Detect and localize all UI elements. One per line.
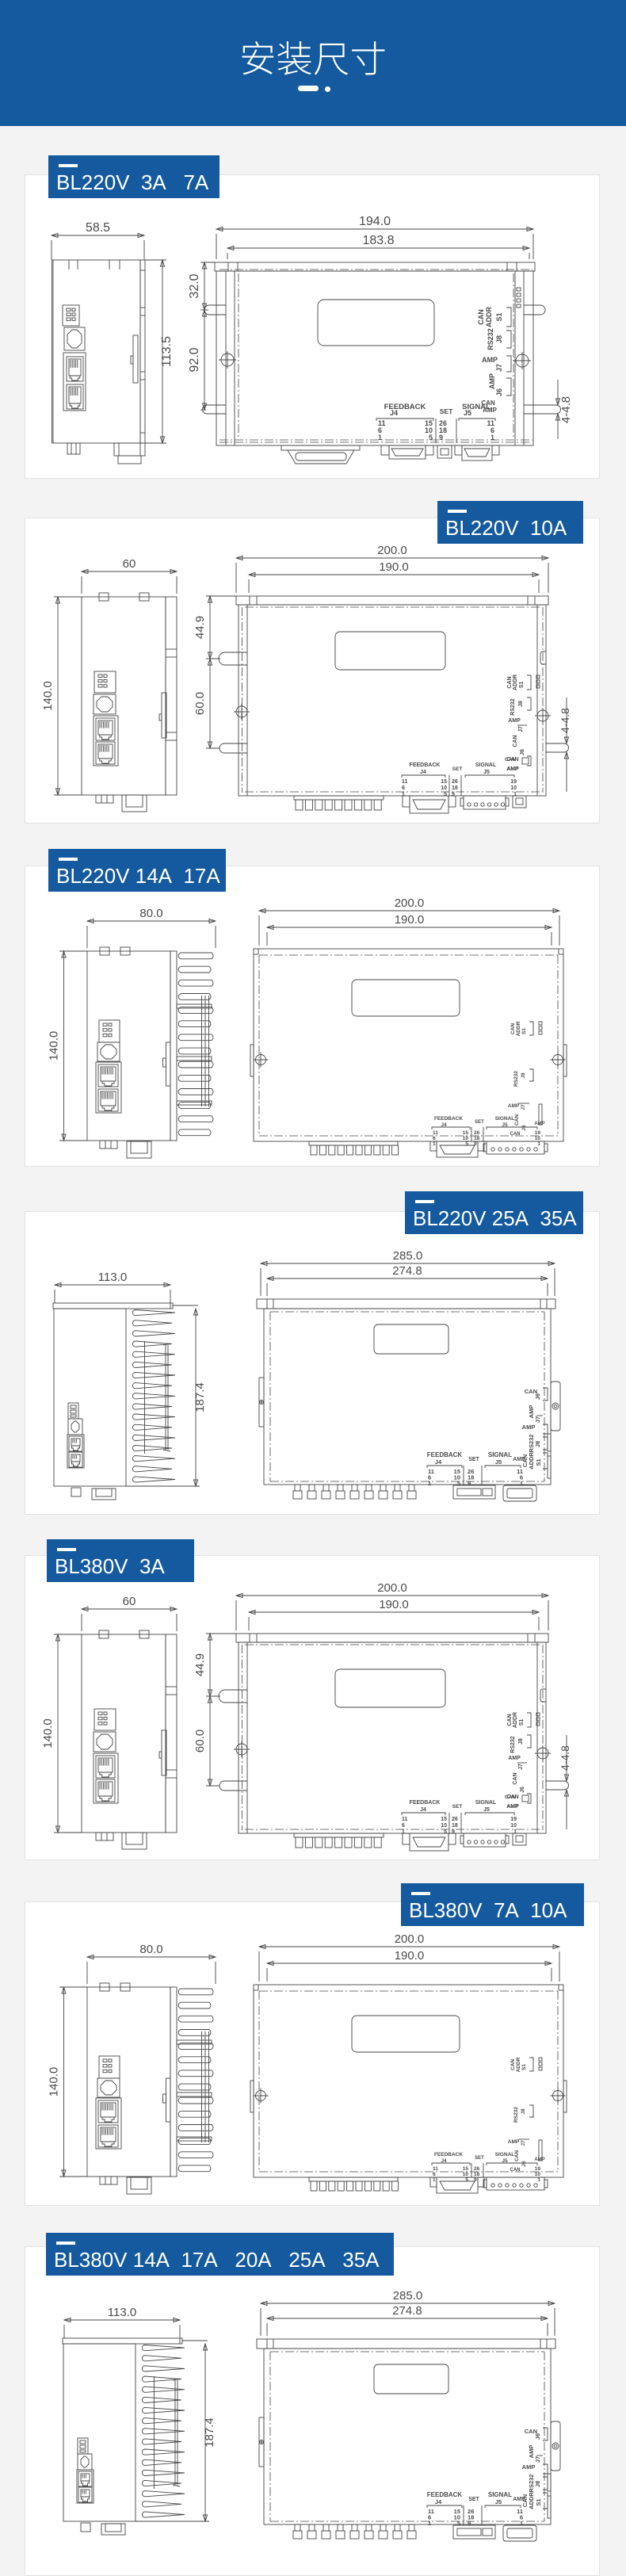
svg-text:AMP: AMP (508, 718, 521, 724)
svg-text:J6: J6 (495, 388, 503, 396)
svg-text:10: 10 (510, 785, 517, 791)
svg-text:AMP: AMP (513, 1457, 525, 1462)
svg-text:J6: J6 (520, 749, 525, 755)
svg-text:SIGNAL: SIGNAL (475, 762, 497, 768)
svg-text:18: 18 (452, 1823, 458, 1829)
svg-text:274.8: 274.8 (392, 1264, 422, 1278)
svg-text:200.0: 200.0 (395, 1932, 425, 1946)
svg-text:SET: SET (475, 2156, 484, 2161)
svg-text:32.0: 32.0 (188, 273, 201, 298)
svg-text:J7: J7 (495, 364, 503, 372)
svg-text:SET: SET (468, 2497, 479, 2502)
svg-text:J4: J4 (390, 409, 398, 417)
svg-text:SET: SET (475, 1120, 484, 1125)
svg-text:S1: S1 (535, 2498, 542, 2505)
svg-text:18: 18 (474, 2172, 480, 2177)
svg-text:113.0: 113.0 (108, 2306, 136, 2319)
svg-text:ADDR: ADDR (485, 307, 493, 327)
svg-text:10: 10 (535, 1136, 541, 1141)
svg-text:15: 15 (441, 1817, 447, 1822)
svg-text:15: 15 (441, 779, 447, 785)
svg-text:SIGNAL: SIGNAL (488, 2491, 512, 2498)
svg-text:190.0: 190.0 (379, 560, 409, 574)
svg-text:19: 19 (535, 1130, 541, 1136)
svg-text:RS232: RS232 (510, 1736, 516, 1753)
svg-text:4-4.8: 4-4.8 (559, 708, 571, 733)
svg-text:J8: J8 (534, 1441, 541, 1447)
svg-text:9: 9 (452, 1829, 455, 1835)
svg-text:4-4.8: 4-4.8 (559, 1745, 571, 1771)
svg-text:15: 15 (463, 2166, 469, 2172)
svg-text:60: 60 (123, 557, 136, 571)
svg-text:J4: J4 (435, 1458, 442, 1466)
svg-text:140.0: 140.0 (41, 1718, 55, 1749)
svg-text:10: 10 (535, 2172, 541, 2177)
svg-text:CAN: CAN (505, 757, 516, 762)
svg-text:S1: S1 (521, 2064, 527, 2070)
svg-text:183.8: 183.8 (362, 234, 394, 247)
svg-text:S1: S1 (519, 1719, 525, 1726)
svg-text:J6: J6 (534, 1393, 541, 1400)
svg-text:5: 5 (457, 1480, 460, 1487)
svg-text:ADDR: ADDR (528, 1452, 535, 1470)
svg-text:ADDR: ADDR (513, 1712, 518, 1728)
svg-text:18: 18 (474, 1136, 480, 1141)
svg-text:AMP: AMP (513, 2497, 525, 2502)
svg-text:RS232: RS232 (513, 2107, 519, 2123)
svg-text:J6: J6 (521, 2161, 527, 2167)
svg-text:FEEDBACK: FEEDBACK (427, 2491, 463, 2498)
svg-text:10: 10 (510, 1823, 517, 1829)
svg-text:1: 1 (513, 792, 517, 797)
svg-text:J7: J7 (521, 2140, 526, 2146)
svg-text:CAN: CAN (514, 2150, 520, 2161)
svg-text:CAN: CAN (513, 735, 518, 747)
svg-text:6: 6 (402, 785, 405, 791)
svg-text:113.5: 113.5 (160, 336, 174, 367)
svg-text:RS232: RS232 (487, 328, 494, 350)
svg-text:26: 26 (474, 1130, 480, 1136)
svg-text:5: 5 (444, 1829, 447, 1835)
svg-text:ADDR: ADDR (516, 2057, 521, 2072)
svg-text:11: 11 (433, 1130, 438, 1136)
svg-text:274.8: 274.8 (392, 2304, 422, 2318)
svg-text:CAN: CAN (510, 2059, 516, 2070)
svg-text:80.0: 80.0 (139, 907, 162, 920)
svg-text:RS232: RS232 (510, 698, 516, 716)
svg-text:5: 5 (444, 792, 447, 797)
svg-text:S1: S1 (519, 682, 525, 689)
svg-text:S1: S1 (535, 1458, 542, 1466)
svg-text:9: 9 (468, 2520, 471, 2527)
svg-text:1: 1 (433, 2177, 436, 2183)
svg-text:J7: J7 (534, 2456, 541, 2463)
svg-text:SET: SET (452, 1804, 463, 1810)
svg-text:1: 1 (433, 1141, 436, 1147)
svg-text:26: 26 (452, 1817, 458, 1822)
svg-text:J6: J6 (520, 1787, 525, 1793)
svg-text:J8: J8 (518, 701, 524, 707)
svg-text:1: 1 (537, 1141, 540, 1147)
svg-text:AMP: AMP (534, 1122, 544, 1126)
svg-text:10: 10 (441, 1823, 447, 1829)
svg-text:SIGNAL: SIGNAL (475, 1800, 497, 1806)
svg-text:190.0: 190.0 (395, 913, 425, 927)
svg-text:J7: J7 (518, 726, 524, 732)
svg-text:AMP: AMP (488, 373, 496, 389)
svg-text:SET: SET (452, 766, 463, 772)
svg-text:190.0: 190.0 (395, 1949, 425, 1963)
svg-text:285.0: 285.0 (393, 1249, 423, 1263)
svg-text:SIGNAL: SIGNAL (488, 1451, 512, 1458)
svg-text:SIGNAL: SIGNAL (495, 2152, 515, 2157)
svg-text:FEEDBACK: FEEDBACK (427, 1451, 463, 1458)
svg-text:60.0: 60.0 (193, 1729, 207, 1752)
svg-text:J5: J5 (495, 1458, 502, 1466)
svg-text:19: 19 (510, 1817, 517, 1822)
svg-text:CAN: CAN (510, 2168, 521, 2173)
svg-text:9: 9 (439, 434, 443, 441)
svg-text:140.0: 140.0 (41, 681, 55, 711)
svg-text:1: 1 (520, 2520, 523, 2527)
svg-text:CAN: CAN (505, 1794, 516, 1800)
svg-text:J8: J8 (521, 1072, 526, 1079)
svg-text:15: 15 (463, 1130, 469, 1136)
svg-text:11: 11 (433, 2166, 438, 2172)
svg-text:CAN: CAN (507, 1714, 513, 1726)
svg-text:CAN: CAN (507, 676, 513, 688)
svg-text:10: 10 (463, 2172, 469, 2177)
svg-text:S1: S1 (495, 312, 503, 321)
svg-text:1: 1 (513, 1829, 517, 1835)
svg-text:5: 5 (465, 1141, 468, 1147)
svg-text:FEEDBACK: FEEDBACK (434, 1116, 463, 1122)
svg-text:J7: J7 (518, 1764, 524, 1770)
svg-text:140.0: 140.0 (48, 2067, 61, 2097)
svg-text:194.0: 194.0 (359, 215, 391, 228)
svg-text:J5: J5 (464, 409, 471, 417)
svg-text:60: 60 (123, 1595, 136, 1608)
svg-text:CAN: CAN (477, 309, 485, 325)
svg-text:6: 6 (433, 1136, 436, 1141)
svg-text:ADDR: ADDR (528, 2492, 535, 2509)
svg-text:CAN: CAN (513, 1772, 518, 1784)
svg-text:CAN: CAN (510, 1023, 516, 1034)
svg-text:200.0: 200.0 (377, 544, 407, 557)
svg-text:58.5: 58.5 (86, 221, 110, 235)
svg-text:AMP: AMP (522, 2463, 536, 2471)
svg-text:200.0: 200.0 (395, 896, 425, 910)
svg-text:1: 1 (428, 1480, 431, 1487)
svg-text:AMP: AMP (507, 1804, 519, 1810)
svg-text:10: 10 (441, 785, 447, 791)
svg-text:140.0: 140.0 (48, 1031, 61, 1061)
svg-text:6: 6 (433, 2172, 436, 2177)
svg-text:1: 1 (490, 434, 494, 441)
svg-text:AMP: AMP (482, 356, 498, 364)
svg-text:113.0: 113.0 (98, 1271, 127, 1284)
svg-text:11: 11 (402, 779, 408, 785)
svg-text:J4: J4 (420, 770, 426, 775)
svg-text:19: 19 (510, 779, 517, 785)
svg-text:AMP: AMP (508, 1103, 520, 1109)
svg-text:26: 26 (452, 779, 458, 785)
svg-text:J8: J8 (518, 1738, 524, 1745)
svg-text:J8: J8 (495, 335, 503, 343)
svg-text:J4: J4 (420, 1807, 426, 1813)
svg-text:J5: J5 (495, 2498, 502, 2505)
svg-text:AMP: AMP (507, 766, 519, 772)
svg-text:5: 5 (429, 434, 433, 441)
svg-text:1: 1 (428, 2520, 431, 2527)
svg-text:RS232: RS232 (513, 1071, 519, 1087)
svg-text:44.9: 44.9 (193, 1653, 207, 1676)
svg-text:190.0: 190.0 (379, 1598, 409, 1611)
svg-text:J4: J4 (435, 2498, 442, 2505)
svg-text:ADDR: ADDR (513, 675, 518, 690)
svg-text:9: 9 (452, 792, 455, 797)
svg-text:9: 9 (468, 1480, 471, 1487)
svg-text:J5: J5 (483, 770, 490, 775)
svg-text:SIGNAL: SIGNAL (495, 1116, 515, 1122)
svg-text:AMP: AMP (534, 2157, 544, 2162)
svg-text:80.0: 80.0 (139, 1943, 162, 1956)
svg-text:187.4: 187.4 (193, 1382, 207, 1412)
svg-text:FEEDBACK: FEEDBACK (410, 1800, 441, 1806)
svg-text:CAN: CAN (510, 1132, 521, 1137)
svg-text:60.0: 60.0 (193, 692, 207, 715)
svg-text:18: 18 (452, 785, 458, 791)
svg-text:200.0: 200.0 (377, 1581, 407, 1595)
svg-text:AMP: AMP (508, 1756, 521, 1761)
svg-text:285.0: 285.0 (393, 2289, 423, 2303)
svg-text:FEEDBACK: FEEDBACK (410, 762, 441, 768)
svg-text:J6: J6 (521, 1125, 527, 1131)
svg-text:1: 1 (378, 434, 382, 441)
svg-text:AMP: AMP (522, 1424, 536, 1431)
svg-text:J8: J8 (521, 2108, 526, 2115)
svg-text:1: 1 (537, 2177, 540, 2183)
svg-text:CAN: CAN (514, 1114, 520, 1126)
svg-text:11: 11 (402, 1817, 408, 1822)
svg-text:26: 26 (474, 2166, 480, 2172)
svg-text:ADDR: ADDR (516, 1021, 521, 1036)
svg-text:1: 1 (520, 1480, 523, 1487)
svg-text:J7: J7 (534, 1416, 541, 1423)
svg-text:FEEDBACK: FEEDBACK (434, 2152, 463, 2157)
svg-text:S1: S1 (521, 1028, 527, 1034)
svg-text:SET: SET (440, 407, 453, 415)
svg-text:4-4.8: 4-4.8 (559, 396, 573, 423)
svg-text:J8: J8 (534, 2481, 541, 2487)
svg-text:SET: SET (468, 1457, 479, 1462)
svg-text:J6: J6 (534, 2433, 541, 2440)
svg-text:AMP: AMP (508, 2139, 520, 2145)
svg-text:92.0: 92.0 (188, 347, 201, 372)
svg-text:J7: J7 (521, 1104, 526, 1110)
svg-text:187.4: 187.4 (203, 2417, 216, 2448)
svg-text:10: 10 (463, 1136, 469, 1141)
svg-text:19: 19 (535, 2166, 541, 2172)
svg-text:6: 6 (402, 1823, 405, 1829)
svg-text:5: 5 (457, 2520, 460, 2527)
svg-text:5: 5 (465, 2177, 468, 2183)
svg-text:44.9: 44.9 (193, 616, 207, 639)
svg-text:J5: J5 (483, 1807, 490, 1813)
